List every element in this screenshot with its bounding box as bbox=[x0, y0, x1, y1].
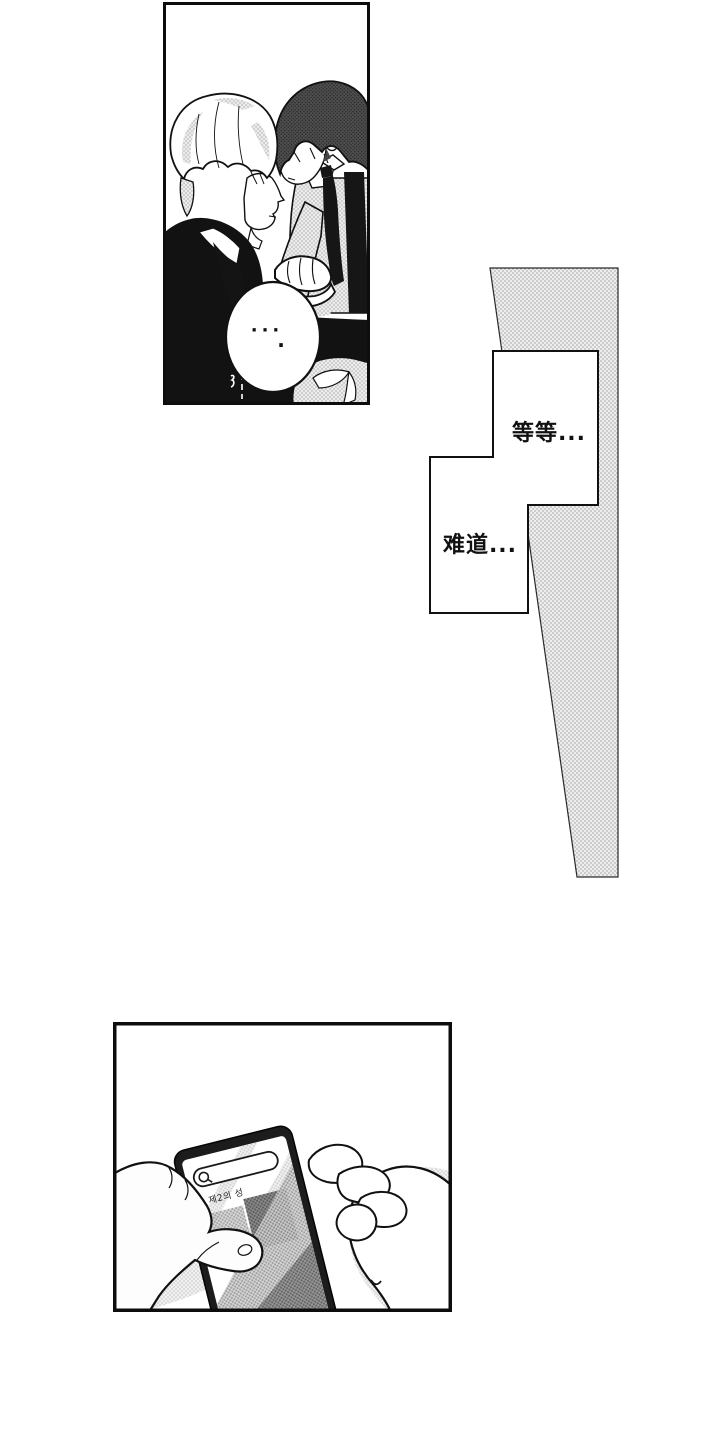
narration-text-doubt: 难道... bbox=[442, 532, 517, 558]
narration-text-wait: 等等... bbox=[512, 420, 586, 446]
panel-phone: 제2의 성 bbox=[113, 1022, 452, 1398]
thumb bbox=[337, 1205, 377, 1241]
speech-bubble-extra-dot: · bbox=[277, 333, 285, 357]
panel-couple: ··· · bbox=[163, 2, 370, 405]
manga-art: 等等... 难道... bbox=[0, 0, 720, 1440]
manga-page: 等等... 难道... bbox=[0, 0, 720, 1440]
speech-bubble: ··· · bbox=[226, 282, 320, 392]
